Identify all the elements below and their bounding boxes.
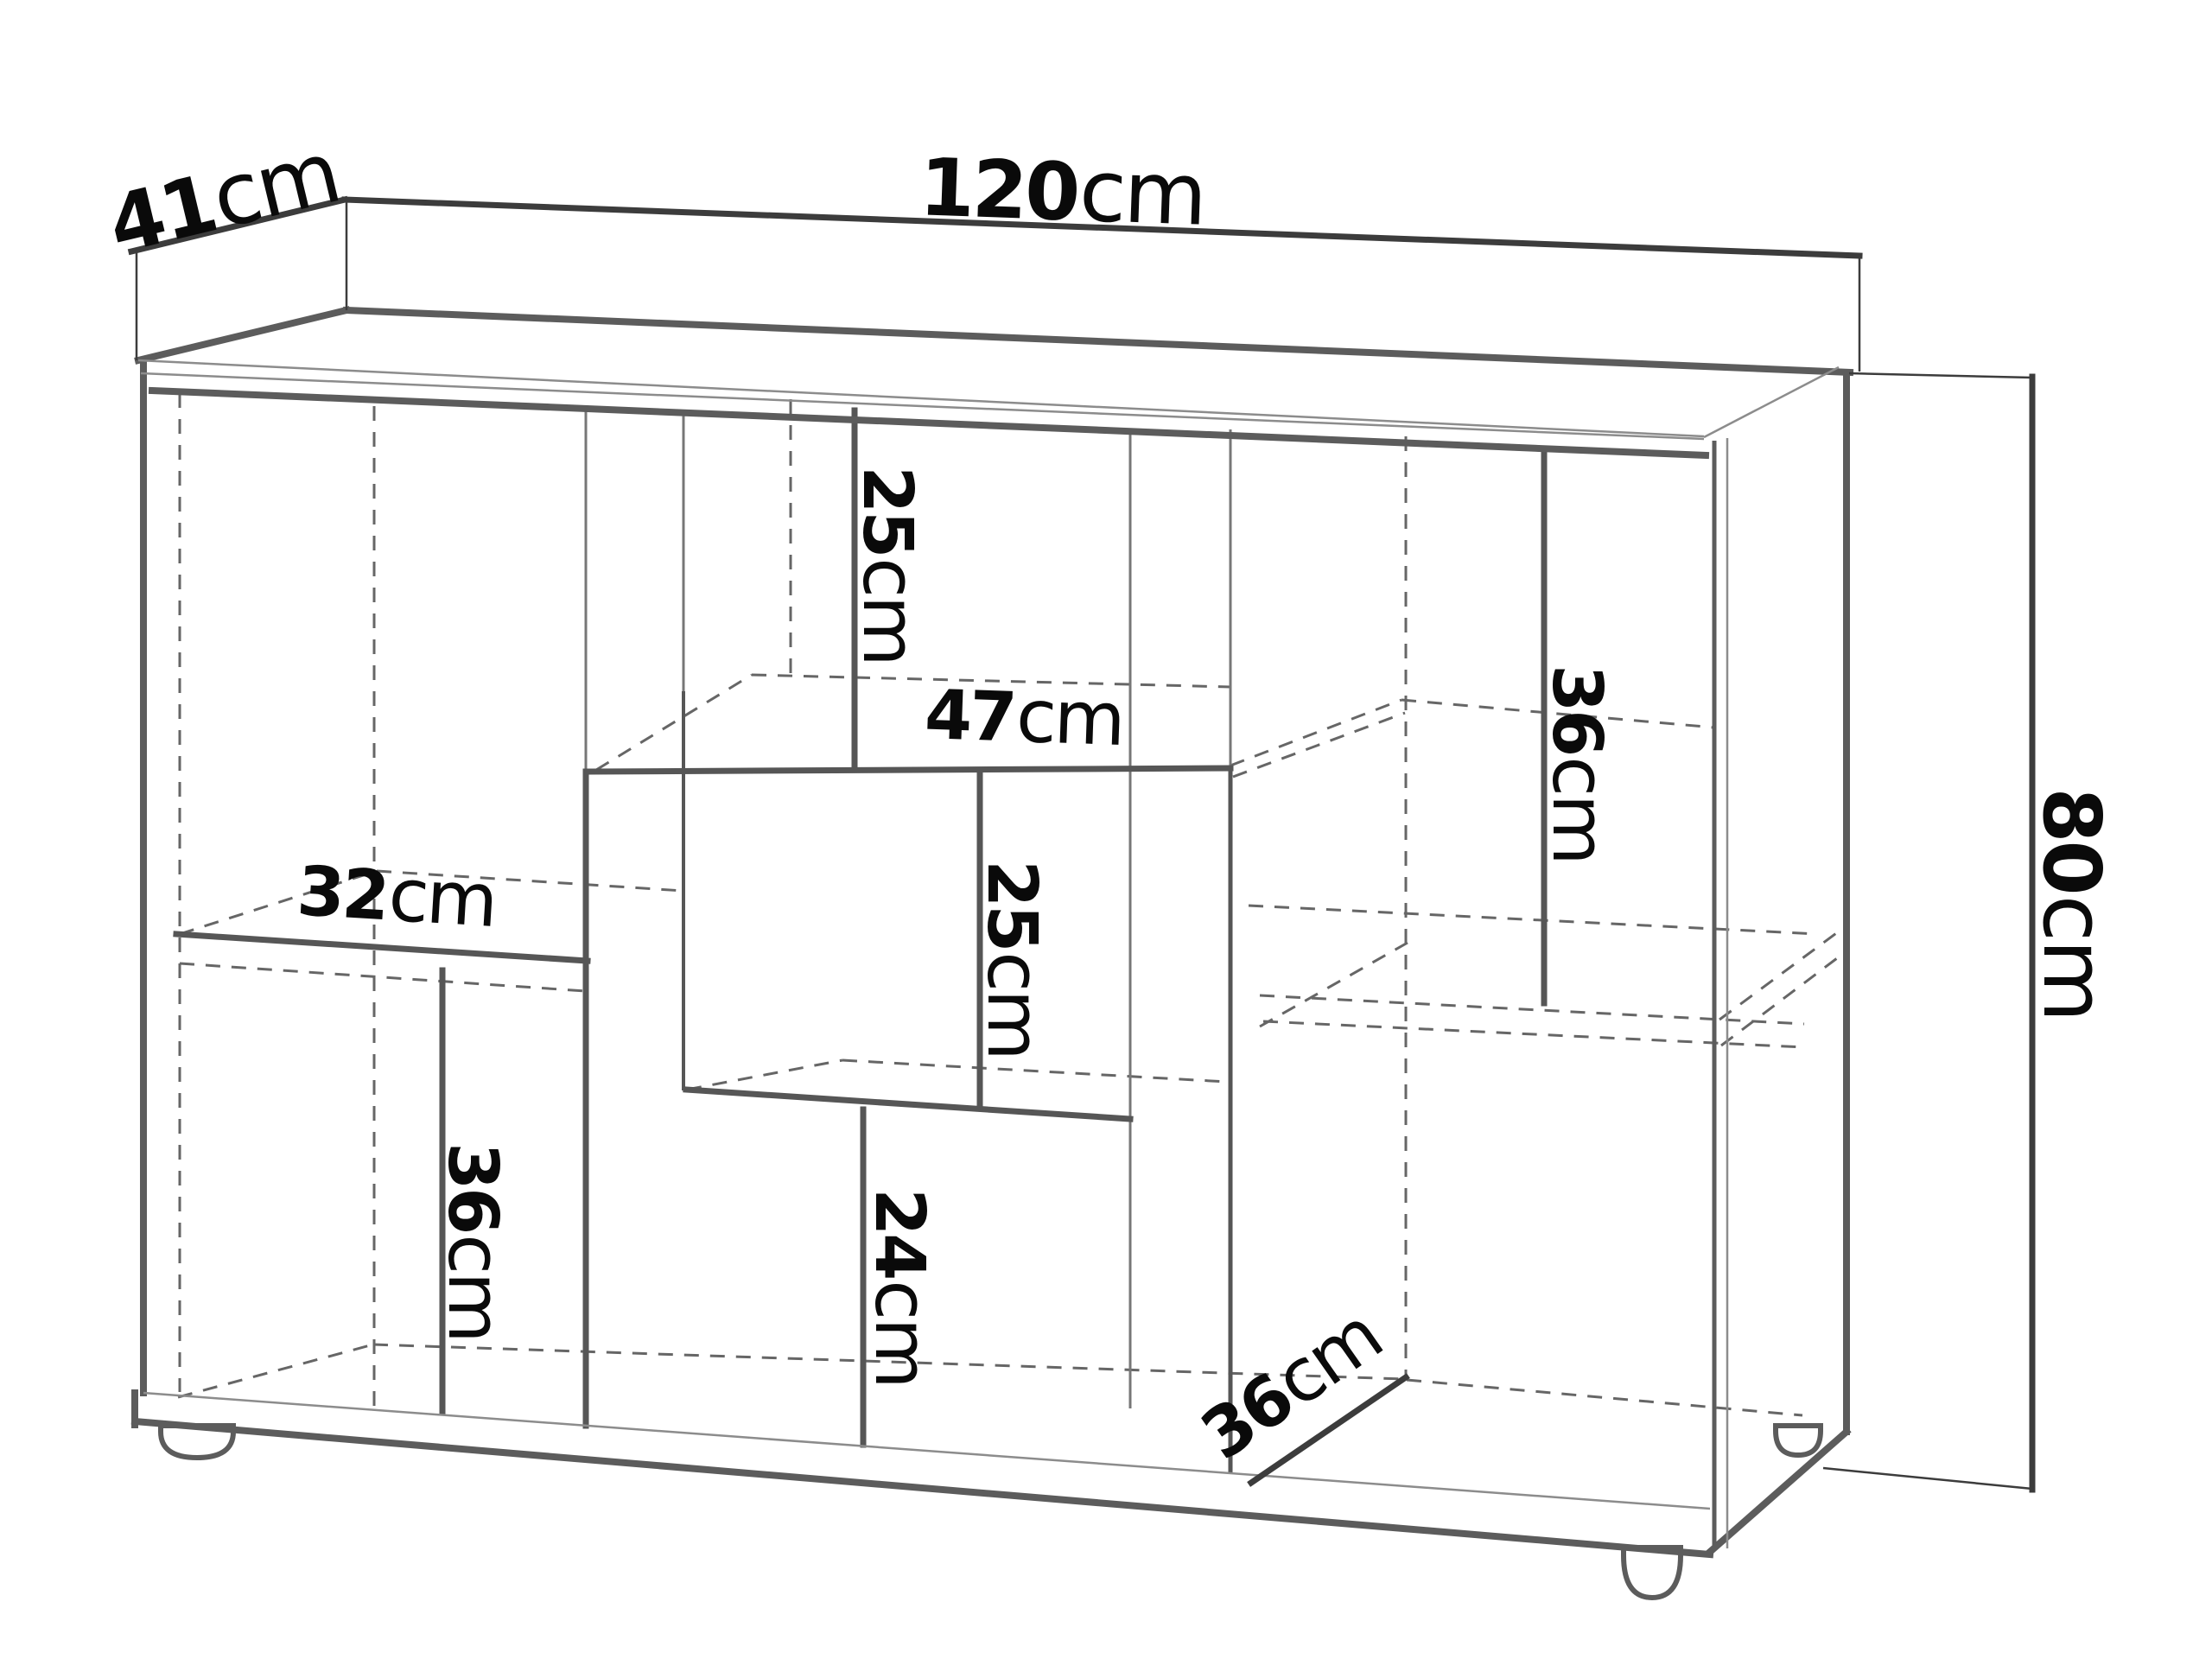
inner-top-edge — [152, 391, 1706, 455]
label-bottom-divider-24cm: 24cm — [858, 1188, 944, 1386]
label-top-shelf-47cm: 47cm — [924, 671, 1125, 763]
cabinet-feet — [161, 1426, 1821, 1598]
dimension-lines — [131, 198, 2032, 1490]
foot-back-right — [1776, 1426, 1821, 1455]
label-left-divider-36cm: 36cm — [431, 1142, 517, 1340]
label-width-120cm: 120cm — [918, 136, 1206, 245]
shelf-lower-mid — [686, 1090, 1130, 1119]
bottom-front-edge — [135, 1421, 1710, 1554]
foot-front-right — [1624, 1548, 1681, 1598]
right-bottom-edge — [1710, 1432, 1847, 1552]
shelf-top-47 — [591, 768, 1230, 772]
label-depth-41cm: 41cm — [99, 123, 347, 274]
label-top-divider-25cm: 25cm — [846, 466, 931, 664]
diagram-page: 41cm 120cm 80cm 25cm 47cm 25cm 32cm 36cm… — [0, 0, 2212, 1659]
label-right-divider-36cm: 36cm — [1535, 664, 1621, 862]
label-height-80cm: 80cm — [2024, 788, 2123, 1020]
label-mid-divider-25cm: 25cm — [970, 860, 1056, 1058]
label-base-depth-36cm: 36cm — [1185, 1293, 1396, 1477]
dimension-labels: 41cm 120cm 80cm 25cm 47cm 25cm 32cm 36cm… — [99, 123, 2123, 1477]
furniture-dimension-diagram: 41cm 120cm 80cm 25cm 47cm 25cm 32cm 36cm… — [0, 0, 2212, 1659]
shelf-left-32 — [176, 934, 588, 961]
label-left-shelf-32cm: 32cm — [295, 847, 498, 944]
back-panel-top-edge — [346, 310, 1850, 372]
top-left-depth-edge — [138, 310, 346, 360]
top-right-depth-edge — [1704, 367, 1839, 437]
